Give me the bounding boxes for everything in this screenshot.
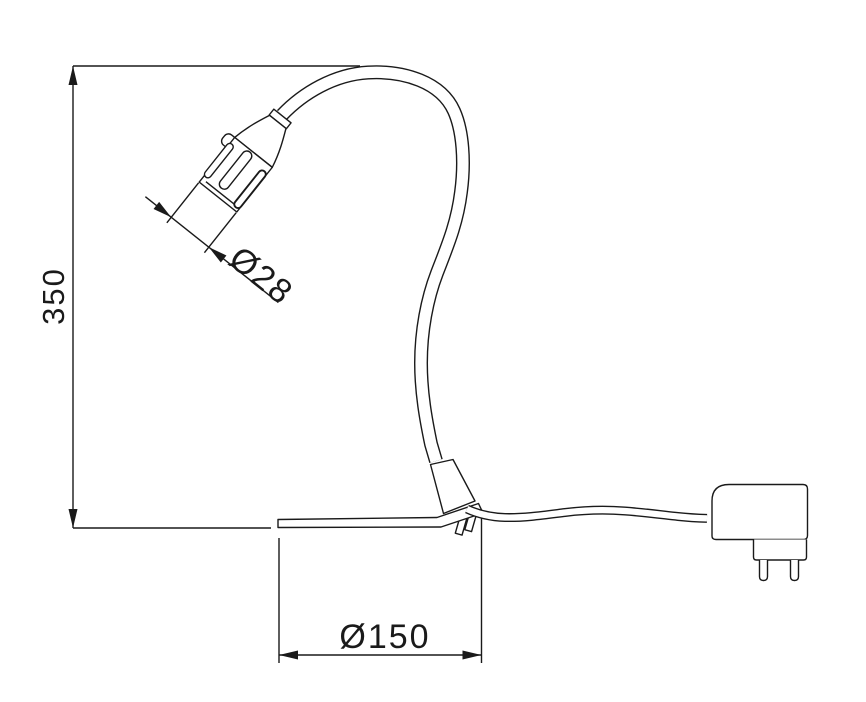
- adapter-plug-base: [754, 540, 807, 561]
- arrowhead-up-icon: [69, 66, 78, 85]
- dimension-height-350: 350: [36, 66, 360, 528]
- gooseneck-base-joint: [431, 460, 476, 514]
- lamp-head: Ø28: [140, 81, 375, 313]
- dimension-label-head-diameter: Ø28: [222, 239, 301, 312]
- adapter-prong-left: [760, 560, 768, 581]
- gooseneck-arm: [282, 72, 463, 461]
- arrowhead-right-icon: [463, 651, 482, 660]
- arrowhead-left-icon: [279, 651, 298, 660]
- dimension-label-base-diameter: Ø150: [339, 618, 430, 656]
- dimension-base-diameter-150: Ø150: [279, 513, 482, 663]
- arrowhead-down-icon: [69, 509, 78, 528]
- power-adapter: [712, 485, 808, 581]
- drawing-svg: 350 Ø150: [0, 0, 866, 702]
- gooseneck-inner: [282, 72, 463, 461]
- lamp-technical-drawing: 350 Ø150: [0, 0, 866, 702]
- power-cord: [467, 509, 707, 518]
- dimension-label-height: 350: [36, 267, 71, 325]
- adapter-body: [712, 485, 808, 540]
- adapter-prong-right: [791, 560, 799, 581]
